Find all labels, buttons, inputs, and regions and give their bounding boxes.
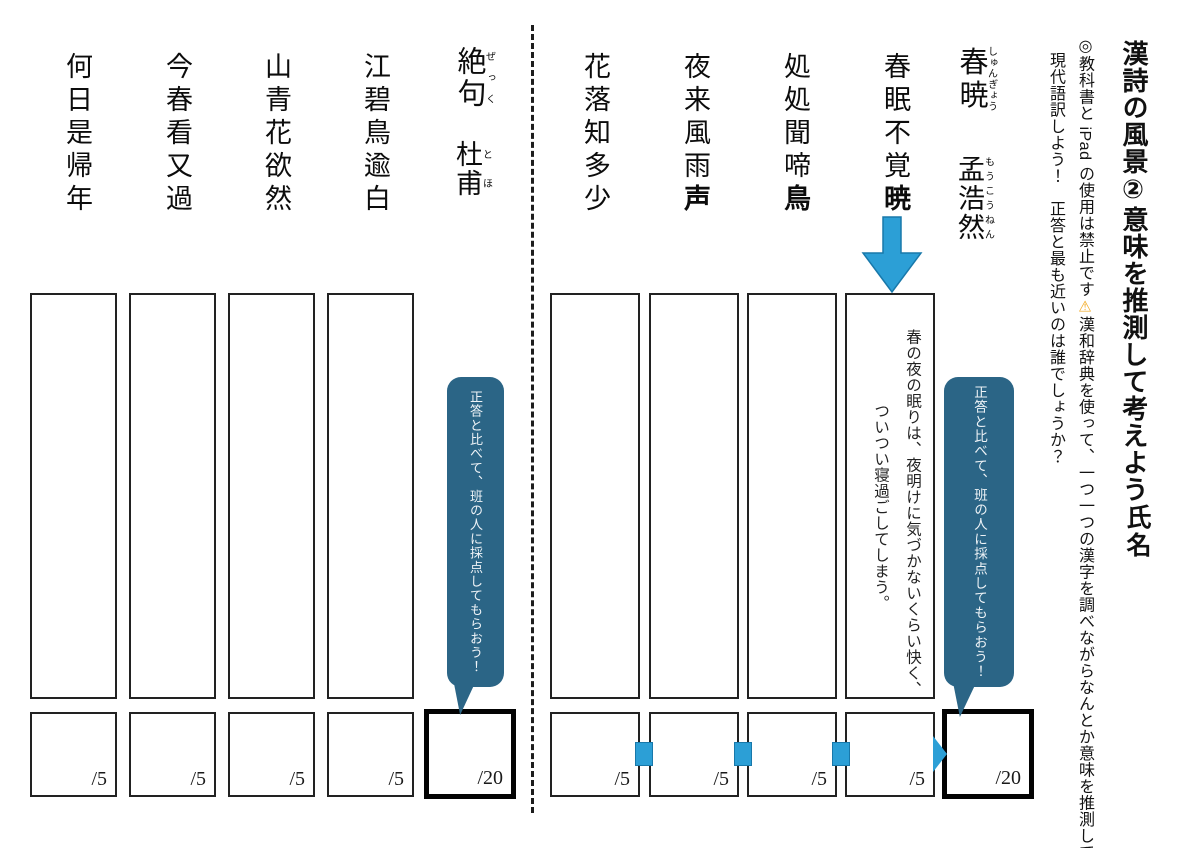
line-text: 山青花欲然 xyxy=(261,52,291,217)
center-divider xyxy=(531,25,534,813)
answer-box-right-1-filled[interactable]: 春の夜の眠りは、夜明けに気づかないくらい快く、 ついつい寝過ごしてしまう。 xyxy=(845,293,935,699)
score-box-right-2[interactable]: /5 xyxy=(747,712,837,797)
line-text: 江碧鳥逾白 xyxy=(360,52,390,217)
line-rhyme-char: 声 xyxy=(680,184,710,217)
poem-line-right-1: 春眠不覚暁 xyxy=(876,52,915,217)
poem-line-left-2: 山青花欲然 xyxy=(257,52,296,217)
score-box-right-4[interactable]: /5 xyxy=(550,712,640,797)
poem-author-ruby-group: 杜甫とほ xyxy=(452,140,482,198)
poem-title-text: 絶句 xyxy=(453,46,485,110)
line-text: 何日是帰年 xyxy=(62,52,92,217)
poem-title-zekku: 絶句ぜっく xyxy=(448,46,494,110)
score-denominator: /5 xyxy=(614,768,630,791)
poem-title-furigana: ぜっく xyxy=(484,46,495,110)
score-box-left-2[interactable]: /5 xyxy=(228,712,315,797)
poem-line-right-2: 処処聞啼鳥 xyxy=(776,52,815,217)
score-denominator: /5 xyxy=(190,768,206,791)
poem-title-ruby-group: 春暁しゅんぎょう xyxy=(955,46,987,112)
score-box-left-3[interactable]: /5 xyxy=(129,712,216,797)
answer-box-left-3[interactable] xyxy=(129,293,216,699)
line-rhyme-char: 鳥 xyxy=(780,184,810,217)
poem-author-toho: 杜甫とほ xyxy=(448,140,491,198)
poem-author-moukounen: 孟浩然もうこうねん xyxy=(950,155,993,242)
speech-bubble-left-text: 正答と比べて、班の人に採点してもらおう！ xyxy=(466,390,485,674)
answer-box-left-4[interactable] xyxy=(30,293,117,699)
score-box-right-3[interactable]: /5 xyxy=(649,712,739,797)
poem-title-text: 春暁 xyxy=(955,46,987,112)
poem-title-ruby-group: 絶句ぜっく xyxy=(453,46,485,110)
poem-line-left-4: 何日是帰年 xyxy=(58,52,97,217)
name-field-label: 氏名 xyxy=(1119,504,1155,560)
instruction-text-after: 漢和辞典を使って、一つ一つの漢字を調べながらなんとか意味を推測して xyxy=(1076,316,1093,848)
poem-author-ruby-group: 孟浩然もうこうねん xyxy=(954,155,984,242)
answer-box-left-2[interactable] xyxy=(228,293,315,699)
answer-box-right-3[interactable] xyxy=(649,293,739,699)
total-denominator: /20 xyxy=(477,767,503,790)
instruction-line-1: ◎教科書と iPad の使用は禁止です⚠漢和辞典を使って、一つ一つの漢字を調べな… xyxy=(1072,36,1096,848)
poem-line-left-1: 江碧鳥逾白 xyxy=(356,52,395,217)
page-title: 漢詩の風景②意味を推測して考えよう xyxy=(1116,40,1153,503)
poem-author-furigana: とほ xyxy=(481,140,492,198)
poem-title-shungyo: 春暁しゅんぎょう xyxy=(950,46,996,112)
line-text: 処処聞啼 xyxy=(780,52,810,184)
score-denominator: /5 xyxy=(388,768,404,791)
score-denominator: /5 xyxy=(811,768,827,791)
line-text: 春眠不覚 xyxy=(880,52,910,184)
score-box-left-4[interactable]: /5 xyxy=(30,712,117,797)
poem-author-furigana: もうこうねん xyxy=(983,155,994,242)
flow-connector-icon xyxy=(734,742,752,766)
model-answer-col-1: 春の夜の眠りは、夜明けに気づかないくらい快く、 xyxy=(901,329,923,697)
poem-author-text: 孟浩然 xyxy=(954,155,984,242)
speech-bubble-right: 正答と比べて、班の人に採点してもらおう！ xyxy=(944,377,1014,687)
speech-bubble-right-text: 正答と比べて、班の人に採点してもらおう！ xyxy=(969,385,989,679)
poem-line-left-3: 今春看又過 xyxy=(158,52,197,217)
flow-connector-icon xyxy=(832,742,850,766)
model-answer-col-2: ついつい寝過ごしてしまう。 xyxy=(869,403,891,611)
poem-author-text: 杜甫 xyxy=(452,140,482,198)
answer-box-right-2[interactable] xyxy=(747,293,837,699)
line-rhyme-char: 暁 xyxy=(880,184,910,217)
answer-box-right-4[interactable] xyxy=(550,293,640,699)
right-arrow-icon xyxy=(933,736,947,772)
line-text: 花落知多少 xyxy=(580,52,610,217)
poem-title-furigana: しゅんぎょう xyxy=(986,46,997,112)
worksheet-page: 漢詩の風景②意味を推測して考えよう 氏名 ◎教科書と iPad の使用は禁止です… xyxy=(0,0,1200,848)
warning-icon: ⚠ xyxy=(1076,297,1093,316)
score-denominator: /5 xyxy=(909,768,925,791)
score-box-left-1[interactable]: /5 xyxy=(327,712,414,797)
instruction-text-before: ◎教科書と iPad の使用は禁止です xyxy=(1076,36,1093,297)
score-denominator: /5 xyxy=(91,768,107,791)
line-text: 今春看又過 xyxy=(162,52,192,217)
score-box-right-1[interactable]: /5 xyxy=(845,712,935,797)
total-score-box-left[interactable]: /20 xyxy=(424,709,516,799)
down-arrow-icon xyxy=(860,216,924,294)
score-denominator: /5 xyxy=(713,768,729,791)
total-score-box-right[interactable]: /20 xyxy=(942,709,1034,799)
poem-line-right-4: 花落知多少 xyxy=(576,52,615,217)
instruction-line-2: 現代語訳しよう！ 正答と最も近いのは誰でしょうか？ xyxy=(1043,52,1067,465)
answer-box-left-1[interactable] xyxy=(327,293,414,699)
flow-connector-icon xyxy=(635,742,653,766)
line-text: 夜来風雨 xyxy=(680,52,710,184)
poem-line-right-3: 夜来風雨声 xyxy=(676,52,715,217)
score-denominator: /5 xyxy=(289,768,305,791)
total-denominator: /20 xyxy=(995,767,1021,790)
speech-bubble-left: 正答と比べて、班の人に採点してもらおう！ xyxy=(447,377,504,687)
